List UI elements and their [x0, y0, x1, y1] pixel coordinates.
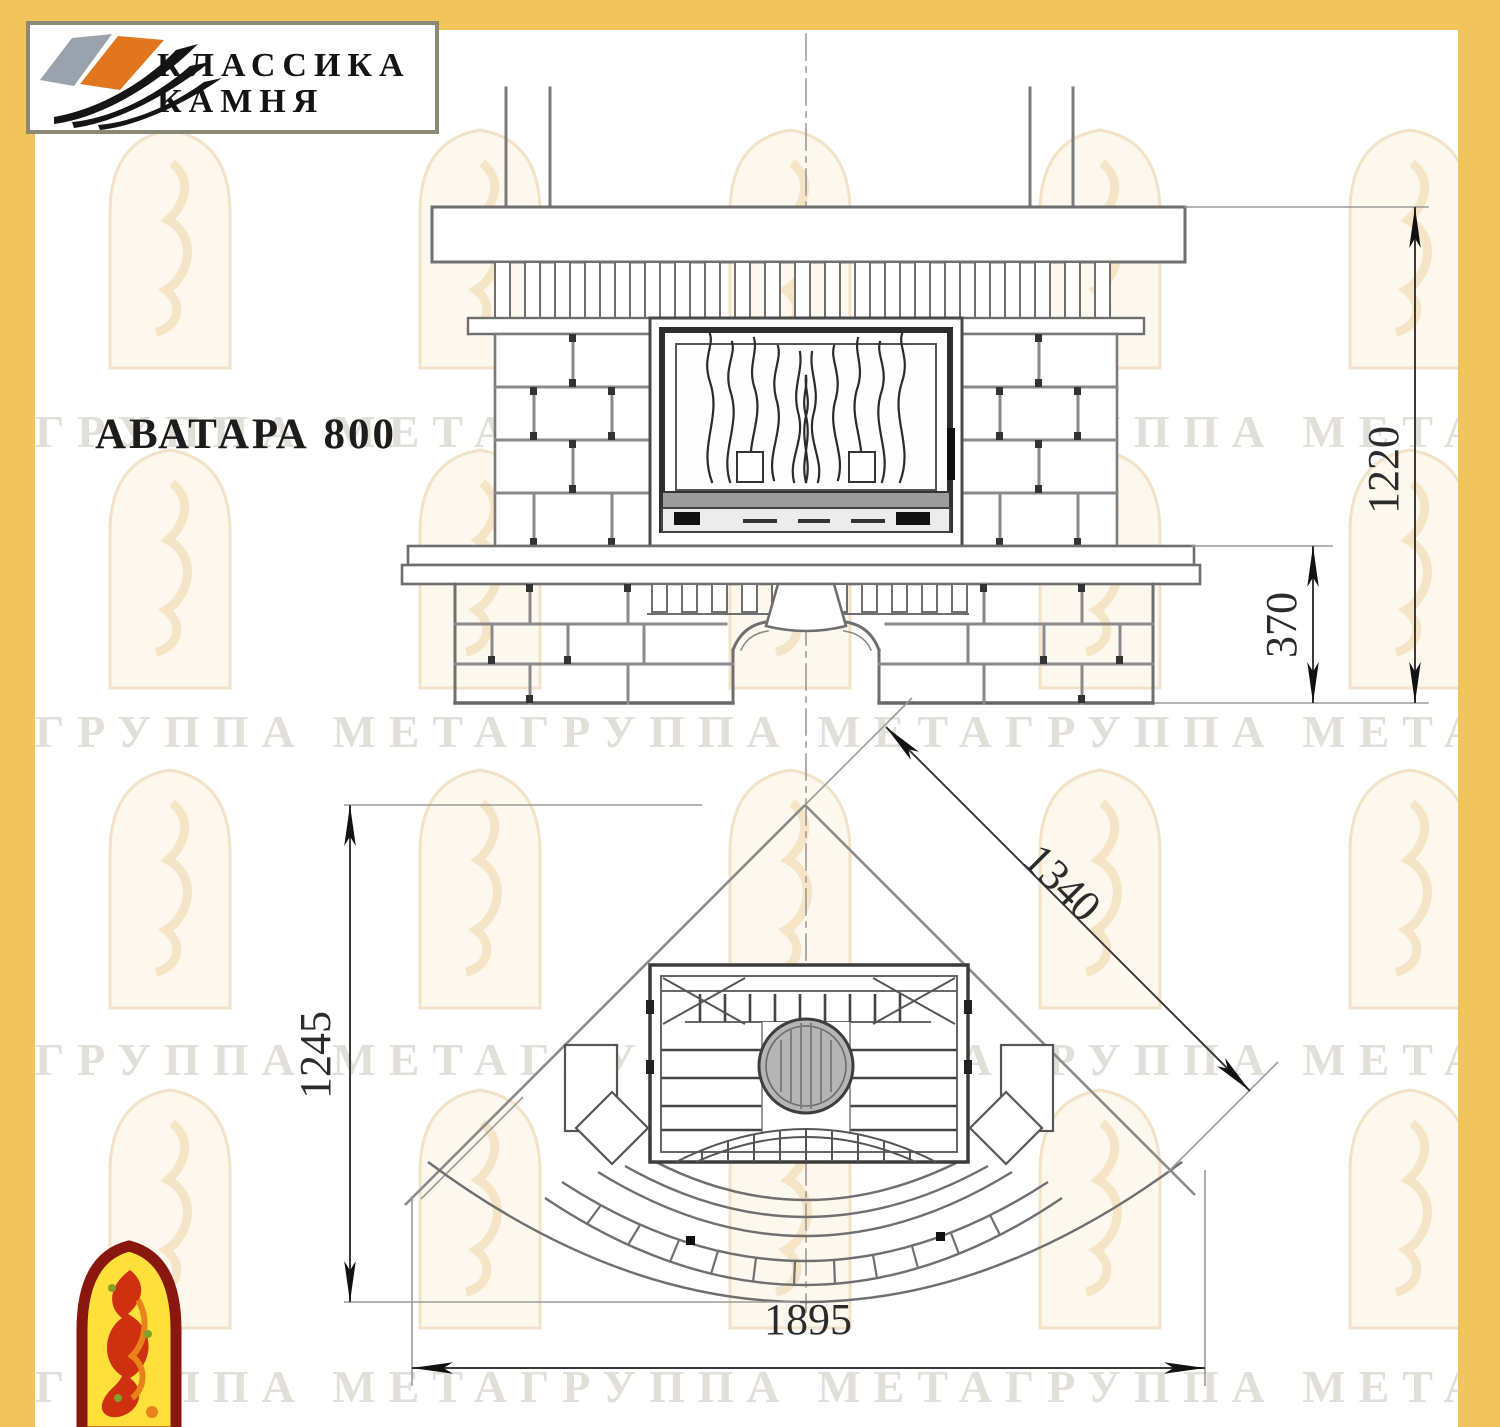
mantel-shelf — [432, 207, 1185, 262]
model-title: АВАТАРА 800 — [95, 411, 397, 458]
left-ledge — [468, 318, 668, 334]
firebox — [650, 318, 962, 546]
right-border-strip — [1458, 0, 1500, 1427]
bench-lower-strip — [402, 565, 1200, 584]
left-brick-column — [495, 334, 650, 546]
brand-name-line2: КАМНЯ — [157, 83, 324, 120]
corner-emblem — [82, 1246, 176, 1427]
top-dentil-frieze — [478, 262, 1133, 320]
drawing-sheet: ГРУППА МЕТАГРУППА МЕТАГРУППА МЕТА ГРУППА… — [0, 0, 1500, 1427]
right-ledge — [944, 318, 1144, 334]
dimension-bench-height: 370 — [1257, 546, 1313, 703]
dim-value-1245: 1245 — [291, 1011, 340, 1099]
firebox-plan — [646, 965, 972, 1162]
brand-name-line1: КЛАССИКА — [157, 47, 411, 84]
keystone — [766, 584, 846, 631]
left-border-strip — [0, 0, 35, 1427]
right-brick-column — [962, 334, 1117, 546]
dim-value-1895: 1895 — [764, 1295, 852, 1344]
watermark-row: ГРУППА МЕТАГРУППА МЕТАГРУППА МЕТА — [35, 706, 1490, 757]
technical-drawing: ГРУППА МЕТАГРУППА МЕТАГРУППА МЕТА ГРУППА… — [0, 0, 1500, 1427]
dim-value-370: 370 — [1257, 592, 1306, 658]
grate-bar — [662, 492, 950, 508]
dim-value-1220: 1220 — [1359, 426, 1408, 514]
door-handle — [947, 428, 955, 480]
brand-logo: КЛАССИКА КАМНЯ — [28, 23, 437, 132]
flue-circle — [759, 1019, 853, 1113]
bench-top-strip — [408, 546, 1194, 565]
